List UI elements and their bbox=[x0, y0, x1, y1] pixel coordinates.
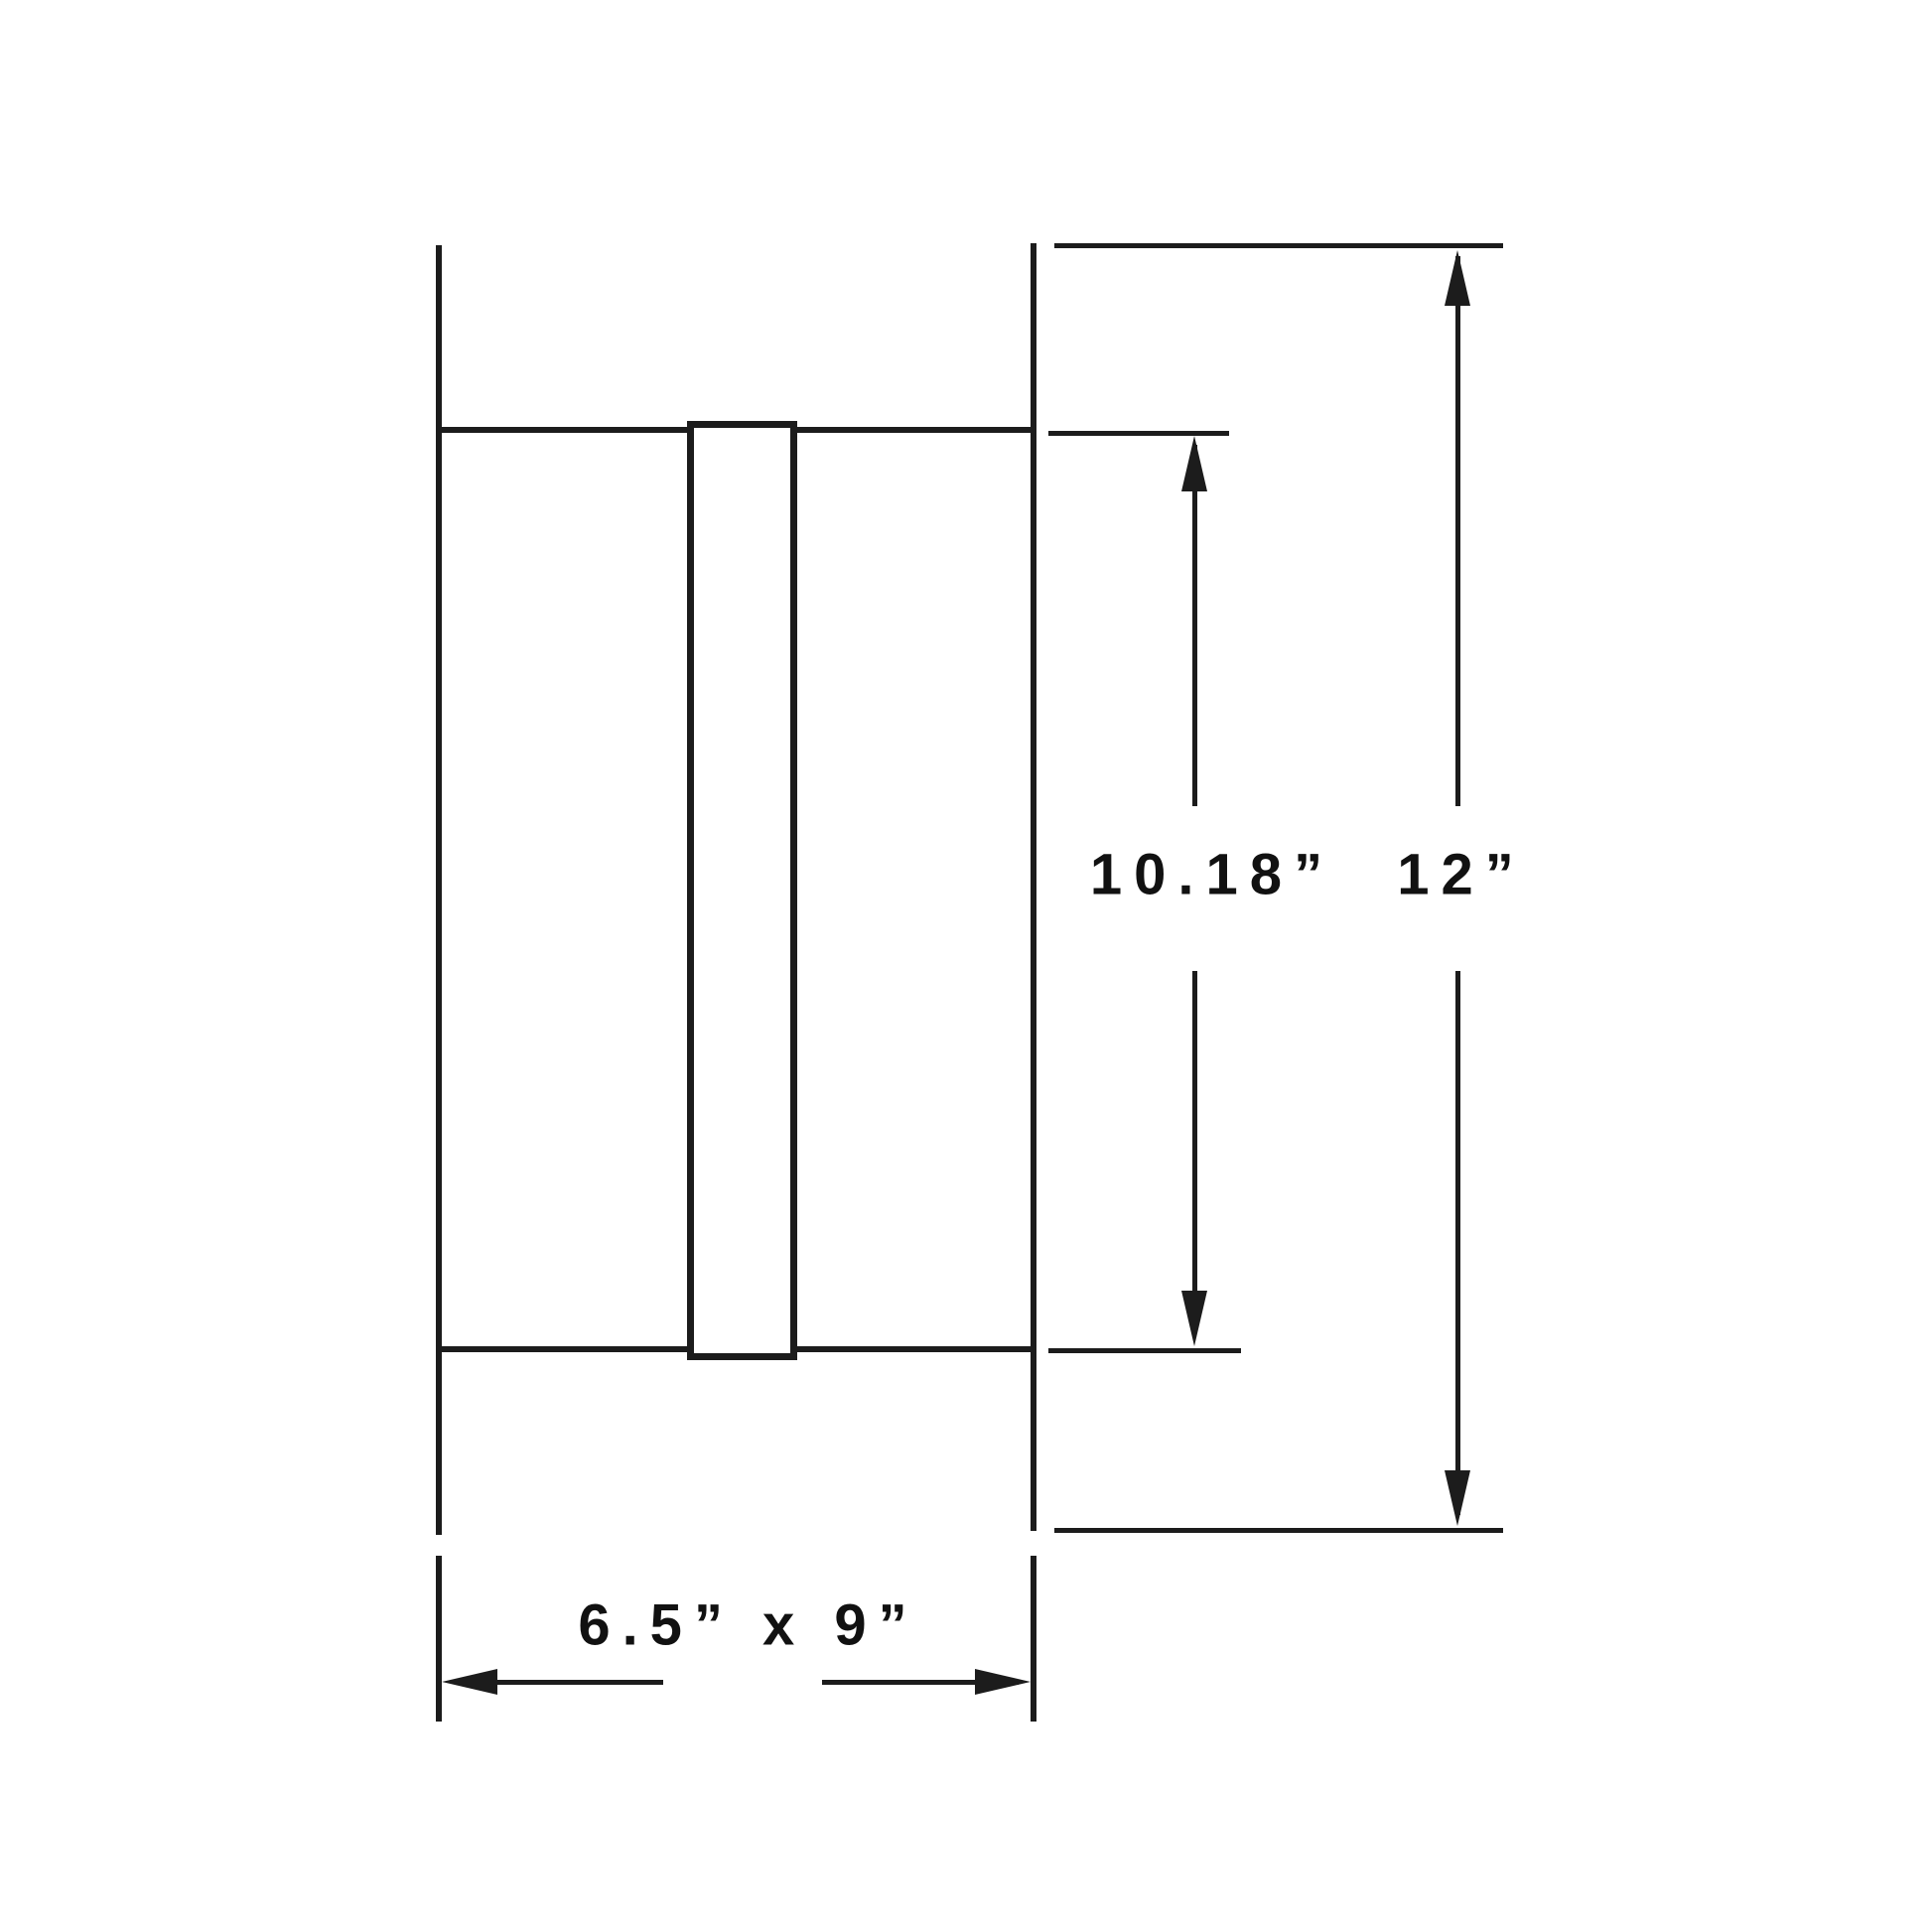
extension-line-left-upper bbox=[436, 245, 442, 1535]
dim-outer-height-shaft-lower bbox=[1455, 971, 1460, 1515]
dim-inner-height-shaft-upper bbox=[1192, 445, 1197, 806]
reference-line-bottom-outer bbox=[1054, 1528, 1503, 1533]
duct-size-dimension-label: 6.5” x 9” bbox=[578, 1592, 918, 1659]
arrowhead-right-icon bbox=[975, 1669, 1031, 1695]
extension-line-left-lower bbox=[436, 1556, 442, 1722]
extension-line-right-lower bbox=[1031, 1556, 1036, 1722]
reference-line-top-outer bbox=[1054, 243, 1503, 248]
dim-inner-height-shaft-lower bbox=[1192, 971, 1197, 1330]
outer-height-dimension-label: 12” bbox=[1397, 842, 1526, 908]
arrowhead-down-icon bbox=[1445, 1470, 1470, 1526]
extension-line-right-upper bbox=[1031, 243, 1036, 1531]
reference-line-bottom-inner bbox=[1048, 1348, 1241, 1353]
arrowhead-left-icon bbox=[442, 1669, 497, 1695]
arrowhead-up-icon bbox=[1445, 250, 1470, 306]
inner-height-dimension-label: 10.18” bbox=[1090, 842, 1334, 908]
technical-drawing-canvas: 10.18” 12” 6.5” x 9” bbox=[0, 0, 1932, 1932]
arrowhead-up-icon bbox=[1181, 436, 1207, 491]
flange-band bbox=[687, 421, 797, 1360]
arrowhead-down-icon bbox=[1181, 1291, 1207, 1346]
dim-outer-height-shaft-upper bbox=[1455, 256, 1460, 806]
